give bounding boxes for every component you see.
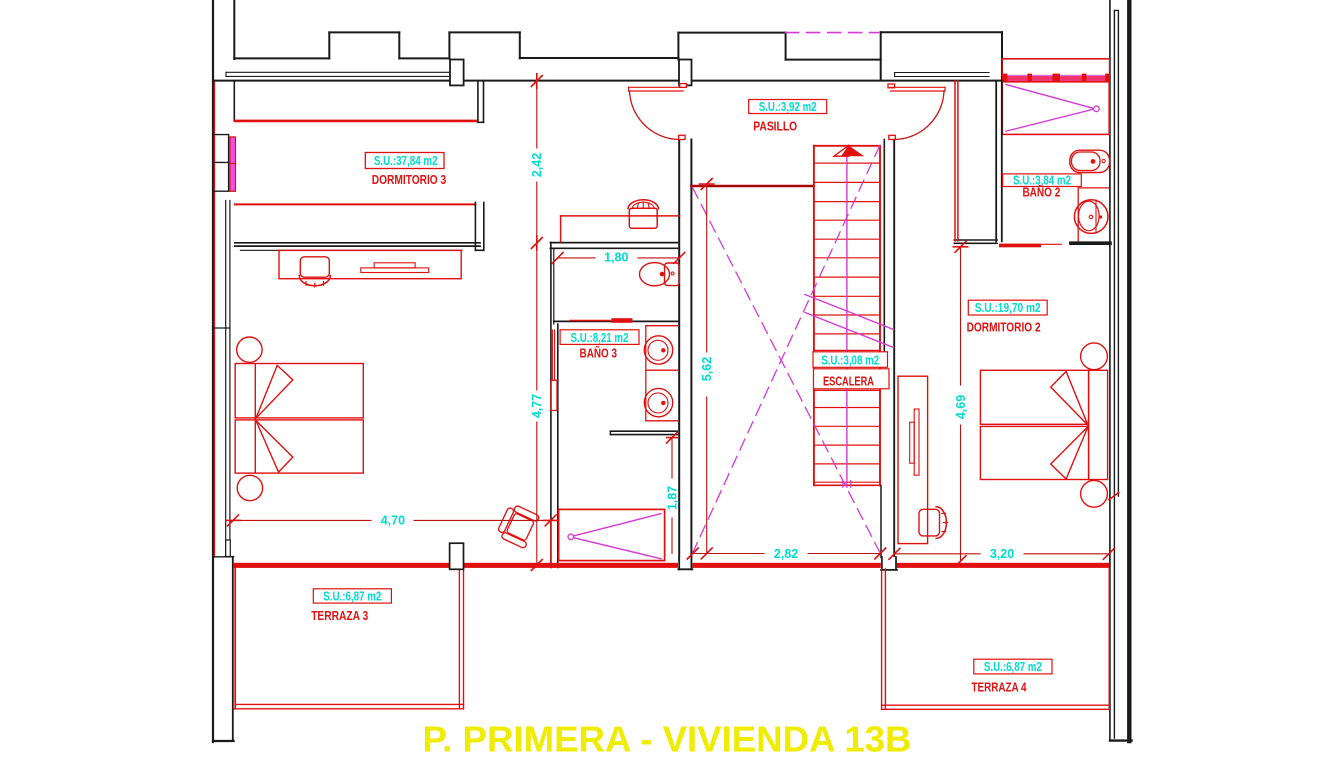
- svg-text:DORMITORIO 2: DORMITORIO 2: [967, 320, 1041, 335]
- svg-text:S.U.:3,08 m2: S.U.:3,08 m2: [821, 352, 879, 367]
- svg-text:S.U.:6,87 m2: S.U.:6,87 m2: [984, 659, 1042, 674]
- svg-text:P. PRIMERA - VIVIENDA 13B: P. PRIMERA - VIVIENDA 13B: [423, 719, 912, 760]
- svg-text:4,69: 4,69: [954, 395, 968, 419]
- svg-text:BAÑO 2: BAÑO 2: [1022, 185, 1060, 200]
- svg-text:4,70: 4,70: [381, 514, 405, 528]
- svg-text:BAÑO 3: BAÑO 3: [580, 346, 618, 361]
- svg-text:2,42: 2,42: [530, 153, 544, 177]
- svg-text:DORMITORIO 3: DORMITORIO 3: [372, 172, 446, 187]
- svg-text:S.U.:37,84 m2: S.U.:37,84 m2: [374, 153, 438, 168]
- svg-text:S.U.:19,70 m2: S.U.:19,70 m2: [975, 300, 1041, 315]
- svg-text:4,77: 4,77: [530, 394, 544, 418]
- svg-text:S.U.:6,87 m2: S.U.:6,87 m2: [323, 588, 381, 603]
- svg-text:3,20: 3,20: [990, 547, 1014, 561]
- svg-text:1,80: 1,80: [604, 251, 628, 265]
- svg-text:ESCALERA: ESCALERA: [823, 373, 874, 388]
- svg-text:2,82: 2,82: [774, 547, 798, 561]
- svg-text:TERRAZA 4: TERRAZA 4: [971, 680, 1027, 695]
- svg-text:S.U.:3,92 m2: S.U.:3,92 m2: [759, 99, 817, 114]
- svg-text:PASILLO: PASILLO: [753, 119, 797, 134]
- svg-text:1,87: 1,87: [665, 486, 679, 510]
- svg-text:TERRAZA 3: TERRAZA 3: [311, 608, 368, 623]
- svg-text:S.U.:8,21 m2: S.U.:8,21 m2: [571, 330, 629, 345]
- svg-text:5,62: 5,62: [700, 357, 714, 381]
